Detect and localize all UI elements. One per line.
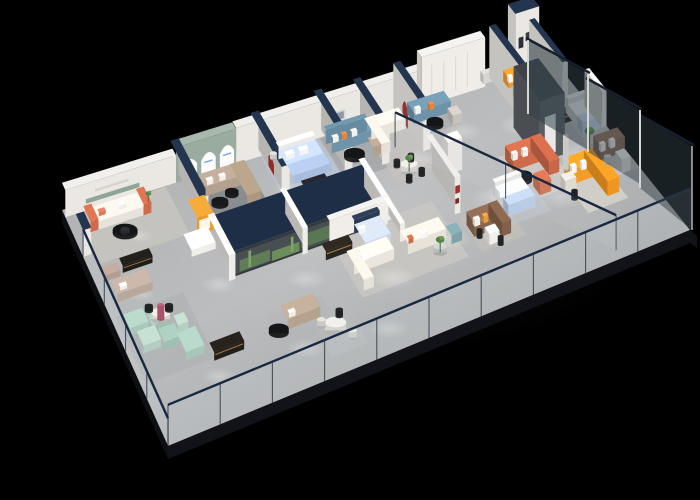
frame <box>455 56 456 90</box>
showroom-scene <box>0 0 700 500</box>
coffee-table-front <box>269 324 289 334</box>
frame <box>467 52 468 87</box>
disc <box>498 235 504 238</box>
disc <box>165 303 173 307</box>
coffee-table-arch-2 <box>225 188 238 195</box>
disc <box>419 167 425 170</box>
plant-leaves2 <box>148 191 151 194</box>
disc <box>121 227 130 232</box>
disc <box>317 317 326 321</box>
aquarium-pillar-2-front <box>303 227 308 255</box>
red-art-wall-front <box>455 176 461 215</box>
coffee-table-arch-1 <box>211 197 228 205</box>
disc <box>336 307 343 311</box>
disc <box>477 228 483 231</box>
coffee-table-teal2 <box>427 117 444 125</box>
disc <box>145 304 153 308</box>
aquarium-pillar-1-front <box>229 253 236 281</box>
spotlight-glow <box>286 269 326 289</box>
flower-vase-rim <box>157 305 164 319</box>
disc <box>406 173 412 176</box>
dining-table-front <box>325 317 346 328</box>
flower-vase <box>157 303 164 307</box>
plant-leaves2 <box>439 236 444 240</box>
coffee-table-teal1 <box>344 148 365 158</box>
frame <box>443 60 444 94</box>
frame <box>431 65 432 99</box>
box-front <box>509 76 513 83</box>
disc <box>394 158 400 161</box>
tall-wall-art-1 <box>519 36 524 48</box>
desk-chair <box>571 189 577 192</box>
floor-lamp-shade-rim <box>563 136 569 170</box>
spotlight-glow <box>370 266 417 289</box>
showroom-3d-render <box>0 0 700 500</box>
disc <box>270 151 277 154</box>
